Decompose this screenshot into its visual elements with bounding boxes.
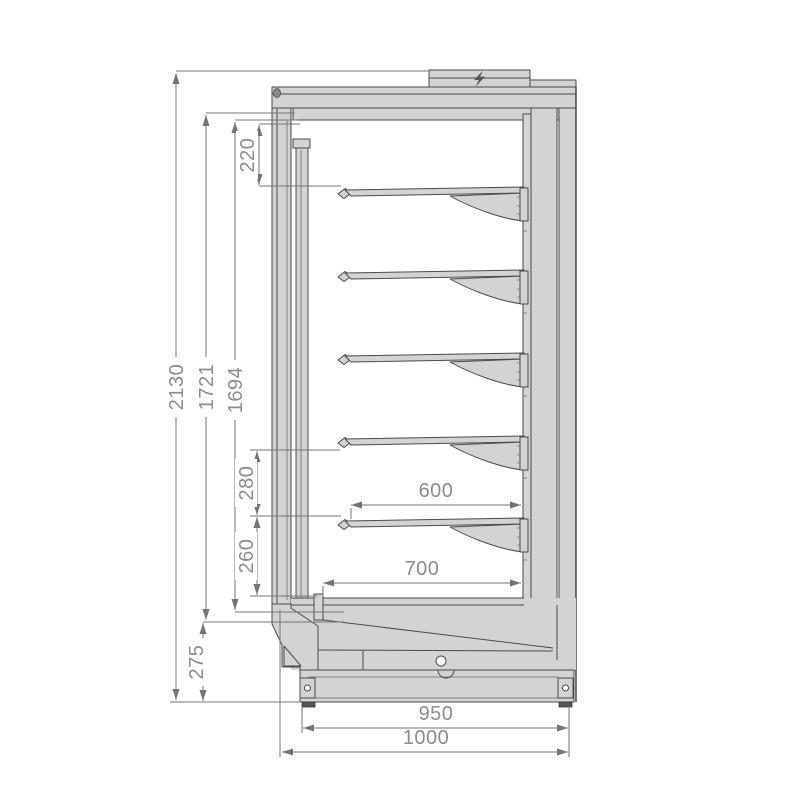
screw-hole-left xyxy=(305,685,311,691)
shelf-1 xyxy=(338,187,528,221)
canopy xyxy=(272,87,576,108)
svg-text:275: 275 xyxy=(186,645,208,680)
svg-text:280: 280 xyxy=(236,466,258,501)
shelf-3 xyxy=(338,353,528,387)
base-plinth xyxy=(300,670,574,702)
dim-label-base-height: 275 xyxy=(185,638,208,686)
air-duct-strip xyxy=(296,148,308,600)
dim-label-overall-depth: 1000 xyxy=(403,727,450,749)
deck-hole xyxy=(436,656,446,666)
canopy-rear-step xyxy=(530,80,576,87)
dim-label-upper-height: 1721 xyxy=(195,357,218,417)
svg-text:1721: 1721 xyxy=(196,364,218,411)
cabinet-section-drawing: 2130 1721 1694 220 280 260 275 600 700 xyxy=(0,0,800,800)
dim-label-shelf-spacing-lower: 260 xyxy=(235,532,258,580)
shelf-4 xyxy=(338,436,528,470)
svg-text:220: 220 xyxy=(237,138,259,173)
cabinet-body xyxy=(272,70,576,707)
dim-label-top-gap: 220 xyxy=(236,131,259,179)
shelf-5 xyxy=(338,518,528,552)
rear-duct-column xyxy=(531,108,557,645)
dim-label-interior-height: 1694 xyxy=(224,360,247,420)
rear-outer-column xyxy=(559,108,576,670)
dim-label-shelf-spacing-upper: 280 xyxy=(235,459,258,507)
foot-left xyxy=(302,702,315,707)
dim-label-base-depth: 950 xyxy=(419,703,454,725)
foot-right xyxy=(559,702,572,707)
dim-label-bottom-deck-depth: 700 xyxy=(405,558,440,580)
shelf-2 xyxy=(338,270,528,304)
deck-front-lip xyxy=(314,594,323,620)
screw-hole-right xyxy=(563,685,569,691)
canopy-nose xyxy=(274,89,281,98)
svg-text:1694: 1694 xyxy=(225,367,247,414)
svg-text:260: 260 xyxy=(236,539,258,574)
front-panel xyxy=(272,108,291,604)
svg-text:2130: 2130 xyxy=(166,364,188,411)
dim-label-shelf-depth: 600 xyxy=(419,480,454,502)
drawing-canvas: 2130 1721 1694 220 280 260 275 600 700 xyxy=(0,0,800,800)
dim-label-overall-height: 2130 xyxy=(165,357,188,417)
bottom-housing xyxy=(291,598,576,670)
air-duct-cap xyxy=(293,139,310,148)
